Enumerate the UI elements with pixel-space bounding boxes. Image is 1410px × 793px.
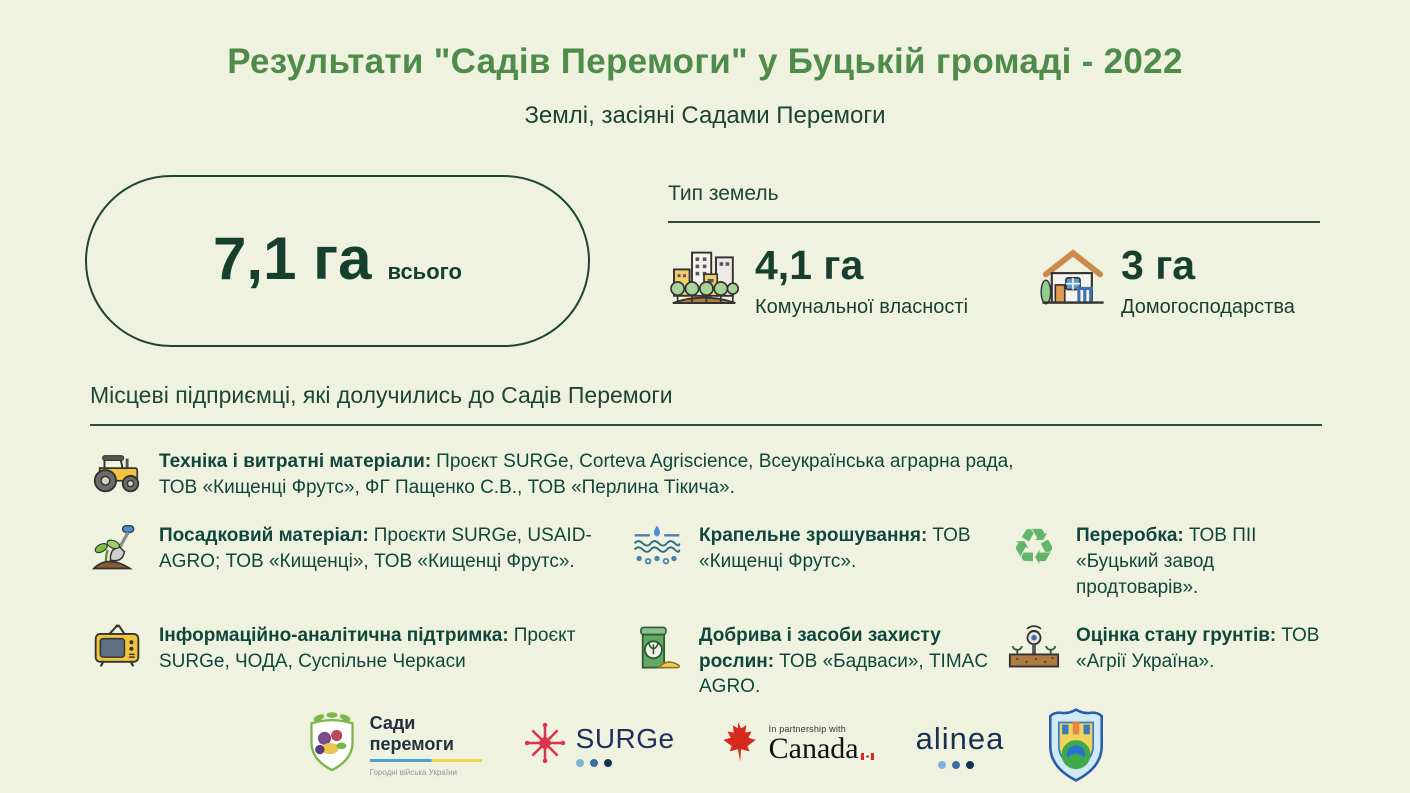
partner-item-fertilizer: Добрива і засоби захисту рослин:ТОВ «Бад… bbox=[630, 623, 1007, 700]
stat-household-body: 3 га Домогосподарства bbox=[1121, 244, 1295, 318]
partner-item-body: Інформаційно-аналітична підтримка:Проєкт… bbox=[159, 623, 629, 674]
dot bbox=[952, 761, 960, 769]
surge-wordmark-block: SURGe bbox=[576, 723, 675, 767]
partner-item-equipment: Техніка і витратні матеріали:Проєкт SURG… bbox=[90, 449, 1029, 500]
community-crest-logo bbox=[1046, 707, 1106, 783]
partners-section: Місцеві підприємці, які долучились до Са… bbox=[90, 382, 1322, 700]
sady-peremohy-wordmark: Сади перемоги Городні війська України bbox=[370, 713, 482, 777]
infographic-slide: Результати "Садів Перемоги" у Буцькій гр… bbox=[0, 0, 1410, 793]
divider-line bbox=[90, 424, 1322, 426]
canada-logo: In partnership with Canada bbox=[717, 720, 874, 771]
canada-flag-icon bbox=[861, 736, 874, 766]
alinea-wordmark: alinea bbox=[916, 721, 1005, 757]
tv-icon bbox=[90, 623, 144, 669]
partners-row-3: Інформаційно-аналітична підтримка:Проєкт… bbox=[90, 623, 1322, 700]
partner-item-body: Добрива і засоби захисту рослин:ТОВ «Бад… bbox=[699, 623, 999, 700]
sady-peremohy-logo: Сади перемоги Городні війська України bbox=[304, 708, 482, 783]
partner-item-body: Оцінка стану грунтів:ТОВ «Агрії Україна»… bbox=[1076, 623, 1322, 674]
city-trees-icon bbox=[668, 243, 740, 320]
seedling-shovel-icon bbox=[90, 523, 144, 575]
partner-item-body: Посадковий матеріал:Проєкти SURGe, USAID… bbox=[159, 523, 629, 574]
canada-wordmark-text: Canada bbox=[769, 734, 859, 764]
partner-item-body: Крапельне зрошування:ТОВ «Кищенці Фрутс»… bbox=[699, 523, 999, 574]
canada-wordmark: Canada bbox=[769, 734, 874, 766]
fertilizer-bag-icon bbox=[630, 623, 684, 673]
partner-item-body: Переробка:ТОВ ПІІ «Буцький завод продтов… bbox=[1076, 523, 1322, 600]
maple-leaf-icon bbox=[717, 720, 759, 771]
stat-communal: 4,1 га Комунальної власності bbox=[668, 243, 1040, 320]
dot bbox=[576, 759, 584, 767]
page-title: Результати "Садів Перемоги" у Буцькій гр… bbox=[0, 42, 1410, 82]
dot bbox=[938, 761, 946, 769]
sady-flag-underline bbox=[370, 759, 482, 762]
partner-item-title: Посадковий матеріал: bbox=[159, 525, 369, 546]
partner-item-planting: Посадковий матеріал:Проєкти SURGe, USAID… bbox=[90, 523, 630, 600]
partner-item-soil: Оцінка стану грунтів:ТОВ «Агрії Україна»… bbox=[1007, 623, 1322, 700]
divider-line bbox=[668, 221, 1320, 223]
stat-communal-body: 4,1 га Комунальної власності bbox=[755, 244, 968, 318]
partners-row-2: Посадковий матеріал:Проєкти SURGe, USAID… bbox=[90, 523, 1322, 600]
partners-row-1: Техніка і витратні матеріали:Проєкт SURG… bbox=[90, 449, 1322, 500]
alinea-dots bbox=[938, 761, 1005, 769]
partner-item-title: Техніка і витратні матеріали: bbox=[159, 451, 431, 472]
sady-line2: перемоги bbox=[370, 734, 482, 755]
surge-dots bbox=[576, 759, 675, 767]
land-stats: 4,1 га Комунальної власності bbox=[668, 243, 1320, 320]
soil-sensor-icon bbox=[1007, 623, 1061, 671]
sady-line1: Сади bbox=[370, 713, 482, 734]
stat-household: 3 га Домогосподарства bbox=[1040, 243, 1295, 320]
stat-communal-value: 4,1 га bbox=[755, 244, 968, 287]
partner-item-media: Інформаційно-аналітична підтримка:Проєкт… bbox=[90, 623, 630, 700]
surge-logo: SURGe bbox=[524, 722, 675, 769]
partners-heading: Місцеві підприємці, які долучились до Са… bbox=[90, 382, 1322, 409]
surge-wordmark: SURGe bbox=[576, 723, 675, 755]
partner-item-processing: ♻ Переробка:ТОВ ПІІ «Буцький завод продт… bbox=[1007, 523, 1322, 600]
page-subtitle: Землі, засіяні Садами Перемоги bbox=[0, 102, 1410, 130]
stat-communal-label: Комунальної власності bbox=[755, 296, 968, 319]
partner-item-title: Оцінка стану грунтів: bbox=[1076, 625, 1276, 646]
partner-item-title: Інформаційно-аналітична підтримка: bbox=[159, 625, 509, 646]
footer-logos: Сади перемоги Городні війська України bbox=[0, 700, 1410, 790]
dot bbox=[590, 759, 598, 767]
house-icon bbox=[1040, 248, 1106, 315]
alinea-logo: alinea bbox=[916, 721, 1005, 769]
partner-item-irrigation: Крапельне зрошування:ТОВ «Кищенці Фрутс»… bbox=[630, 523, 1007, 600]
partner-item-body: Техніка і витратні матеріали:Проєкт SURG… bbox=[159, 449, 1029, 500]
surge-rosette-icon bbox=[524, 722, 566, 769]
stat-household-label: Домогосподарства bbox=[1121, 296, 1295, 319]
total-area-value: 7,1 га bbox=[213, 229, 371, 289]
sady-peremohy-shield-icon bbox=[304, 708, 360, 783]
stat-household-value: 3 га bbox=[1121, 244, 1295, 287]
sady-tagline: Городні війська України bbox=[370, 768, 482, 777]
partner-item-title: Переробка: bbox=[1076, 525, 1184, 546]
tractor-icon bbox=[90, 449, 144, 497]
total-area-label: всього bbox=[387, 259, 462, 285]
recycle-icon: ♻ bbox=[1007, 523, 1061, 571]
total-area-pill: 7,1 га всього bbox=[85, 175, 590, 347]
land-types-section: Тип земель bbox=[668, 182, 1320, 320]
drip-irrigation-icon bbox=[630, 523, 684, 569]
partner-item-title: Крапельне зрошування: bbox=[699, 525, 927, 546]
dot bbox=[604, 759, 612, 767]
dot bbox=[966, 761, 974, 769]
land-types-heading: Тип земель bbox=[668, 182, 1320, 206]
canada-wordmark-block: In partnership with Canada bbox=[769, 724, 874, 766]
